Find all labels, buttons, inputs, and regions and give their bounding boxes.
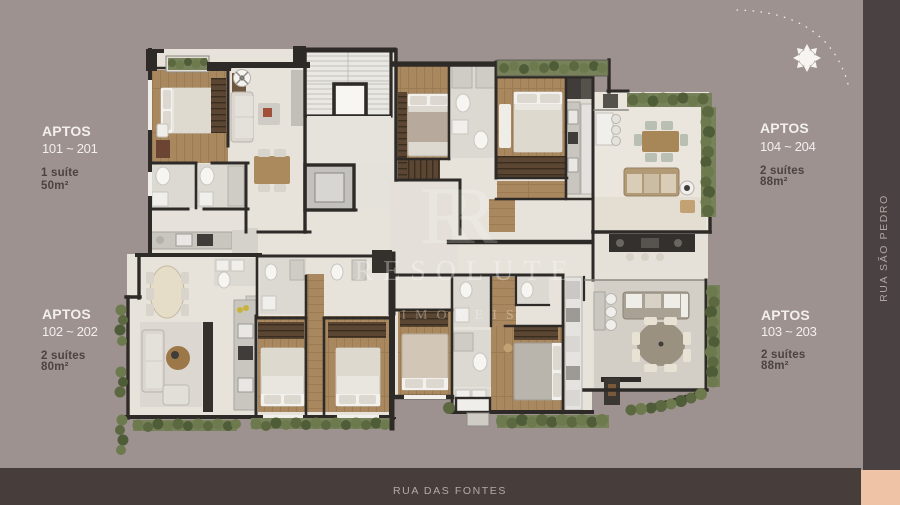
- svg-text:50m²: 50m²: [41, 180, 69, 192]
- svg-text:101 ~ 201: 101 ~ 201: [42, 141, 98, 156]
- svg-text:80m²: 80m²: [41, 361, 69, 373]
- svg-text:88m²: 88m²: [760, 176, 788, 188]
- svg-text:APTOS: APTOS: [42, 123, 91, 139]
- svg-text:APTOS: APTOS: [761, 307, 810, 323]
- svg-text:R: R: [443, 170, 498, 261]
- svg-text:RUA SÃO PEDRO: RUA SÃO PEDRO: [877, 194, 890, 302]
- svg-text:88m²: 88m²: [761, 360, 789, 372]
- svg-text:102 ~ 202: 102 ~ 202: [42, 324, 98, 339]
- svg-text:IMÓVEIS: IMÓVEIS: [401, 306, 522, 323]
- svg-text:103 ~ 203: 103 ~ 203: [761, 324, 817, 339]
- svg-text:RESOLUTE: RESOLUTE: [354, 256, 577, 287]
- svg-text:1 suíte: 1 suíte: [41, 167, 79, 179]
- svg-text:104 ~ 204: 104 ~ 204: [760, 139, 816, 154]
- svg-text:APTOS: APTOS: [42, 306, 91, 322]
- svg-text:APTOS: APTOS: [760, 120, 809, 136]
- svg-text:RUA DAS FONTES: RUA DAS FONTES: [393, 485, 507, 497]
